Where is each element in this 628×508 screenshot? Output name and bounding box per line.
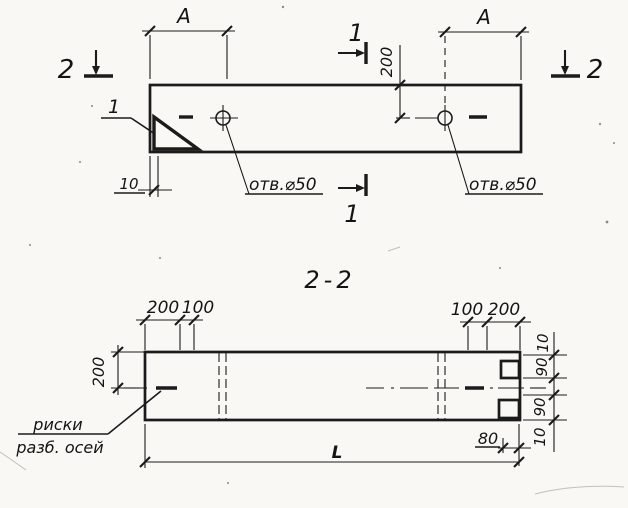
dim-100-top-right-text: 100 [451,300,483,320]
dim-a-left: A [142,4,235,79]
dim-200-left-text: 200 [89,357,108,388]
dim-200-top-right-text: 200 [488,300,520,320]
dim-90-right-bottom-text: 90 [531,397,549,416]
dim-200-plan-text: 200 [377,47,396,78]
top-view: отв.⌀50 отв.⌀50 A [58,4,604,228]
corner-triangle-detail [154,117,198,149]
dim-a-right: A [438,5,529,108]
dim-200-left-section: 200 [89,345,144,395]
dim-90-right-top-text: 90 [533,357,551,376]
dim-a-left-text: A [175,4,191,28]
drawing-sheet: отв.⌀50 отв.⌀50 A [0,0,628,508]
panel-outline-section [145,352,520,420]
detail-callout-text: 1 [108,96,120,118]
section-marker-1-top: 1 [338,19,366,64]
section-view-2-2: 2-2 риски [15,266,567,468]
section-1-top-text: 1 [348,19,363,47]
section-marker-2-left: 2 [58,50,113,85]
dims-top-right: 100 200 [451,300,531,350]
axes-note: риски разб. осей [15,391,161,457]
hole-right-label: отв.⌀50 [469,175,537,195]
section-marker-2-right: 2 [551,50,603,85]
dims-right-stack: 10 90 90 10 [523,332,567,452]
dim-length: L [140,424,524,468]
dim-10-plan: 10 [114,156,172,197]
dim-200-top-left-text: 200 [147,298,179,318]
section-title: 2-2 [304,266,355,294]
axes-note-line2: разб. осей [15,438,103,457]
end-notch-lower [499,400,519,418]
section-1-bottom-text: 1 [344,200,359,228]
hidden-lines [219,353,445,419]
dim-10-right-bottom-text: 10 [531,427,549,446]
dim-length-text: L [332,443,343,463]
technical-drawing: отв.⌀50 отв.⌀50 A [0,0,628,508]
section-2-right-text: 2 [587,55,604,85]
hole-left-label: отв.⌀50 [249,175,317,195]
section-marker-1-bottom: 1 [338,174,366,228]
panel-outline-plan [150,85,521,152]
dim-10-right-top-text: 10 [534,333,552,352]
dim-80-text: 80 [478,429,498,448]
hole-left-callout: отв.⌀50 [226,125,323,195]
section-2-left-text: 2 [58,55,75,85]
dim-10-plan-text: 10 [119,175,138,193]
hole-left [179,105,238,131]
hole-right-callout: отв.⌀50 [448,125,543,195]
axes-note-line1: риски [32,415,82,434]
hole-right [396,105,487,131]
end-notch-upper [501,361,519,378]
detail-callout-1: 1 [101,96,155,134]
dim-a-right-text: A [475,5,491,29]
dims-top-left: 200 100 [136,298,214,350]
dim-100-top-left-text: 100 [182,298,214,318]
